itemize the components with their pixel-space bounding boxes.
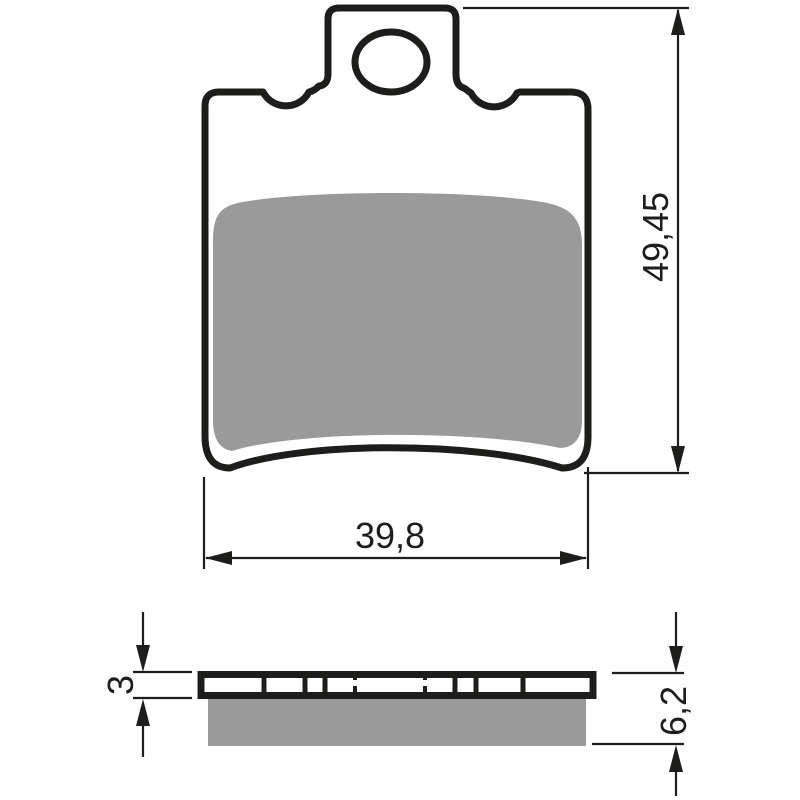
dim-total-arrow-down-icon — [669, 646, 683, 673]
dim-backing-thickness: 3 — [100, 612, 192, 757]
dim-total-label: 6,2 — [653, 686, 694, 736]
dim-total-thickness: 6,2 — [592, 612, 694, 796]
backplate-side — [201, 675, 593, 696]
dim-width-label: 39,8 — [355, 515, 425, 556]
dim-height-arrow-up-icon — [671, 8, 685, 35]
brake-pad-technical-drawing: 49,45 39,8 — [0, 0, 800, 800]
mounting-hole — [355, 32, 427, 92]
front-view: 49,45 39,8 — [204, 8, 689, 569]
dim-width-arrow-left-icon — [205, 551, 232, 565]
drawing-canvas: 49,45 39,8 — [0, 0, 800, 800]
dim-backing-arrow-down-icon — [136, 645, 150, 672]
side-view: 3 6,2 — [100, 612, 694, 796]
dim-width-arrow-right-icon — [560, 551, 587, 565]
dim-width: 39,8 — [204, 467, 588, 569]
friction-material-side — [208, 699, 586, 746]
friction-material-front — [213, 193, 582, 451]
dim-height-arrow-down-icon — [671, 446, 685, 473]
dim-total-arrow-up-icon — [669, 745, 683, 772]
dim-backing-label: 3 — [100, 675, 141, 695]
dim-height-label: 49,45 — [635, 192, 676, 282]
dim-backing-arrow-up-icon — [136, 699, 150, 726]
